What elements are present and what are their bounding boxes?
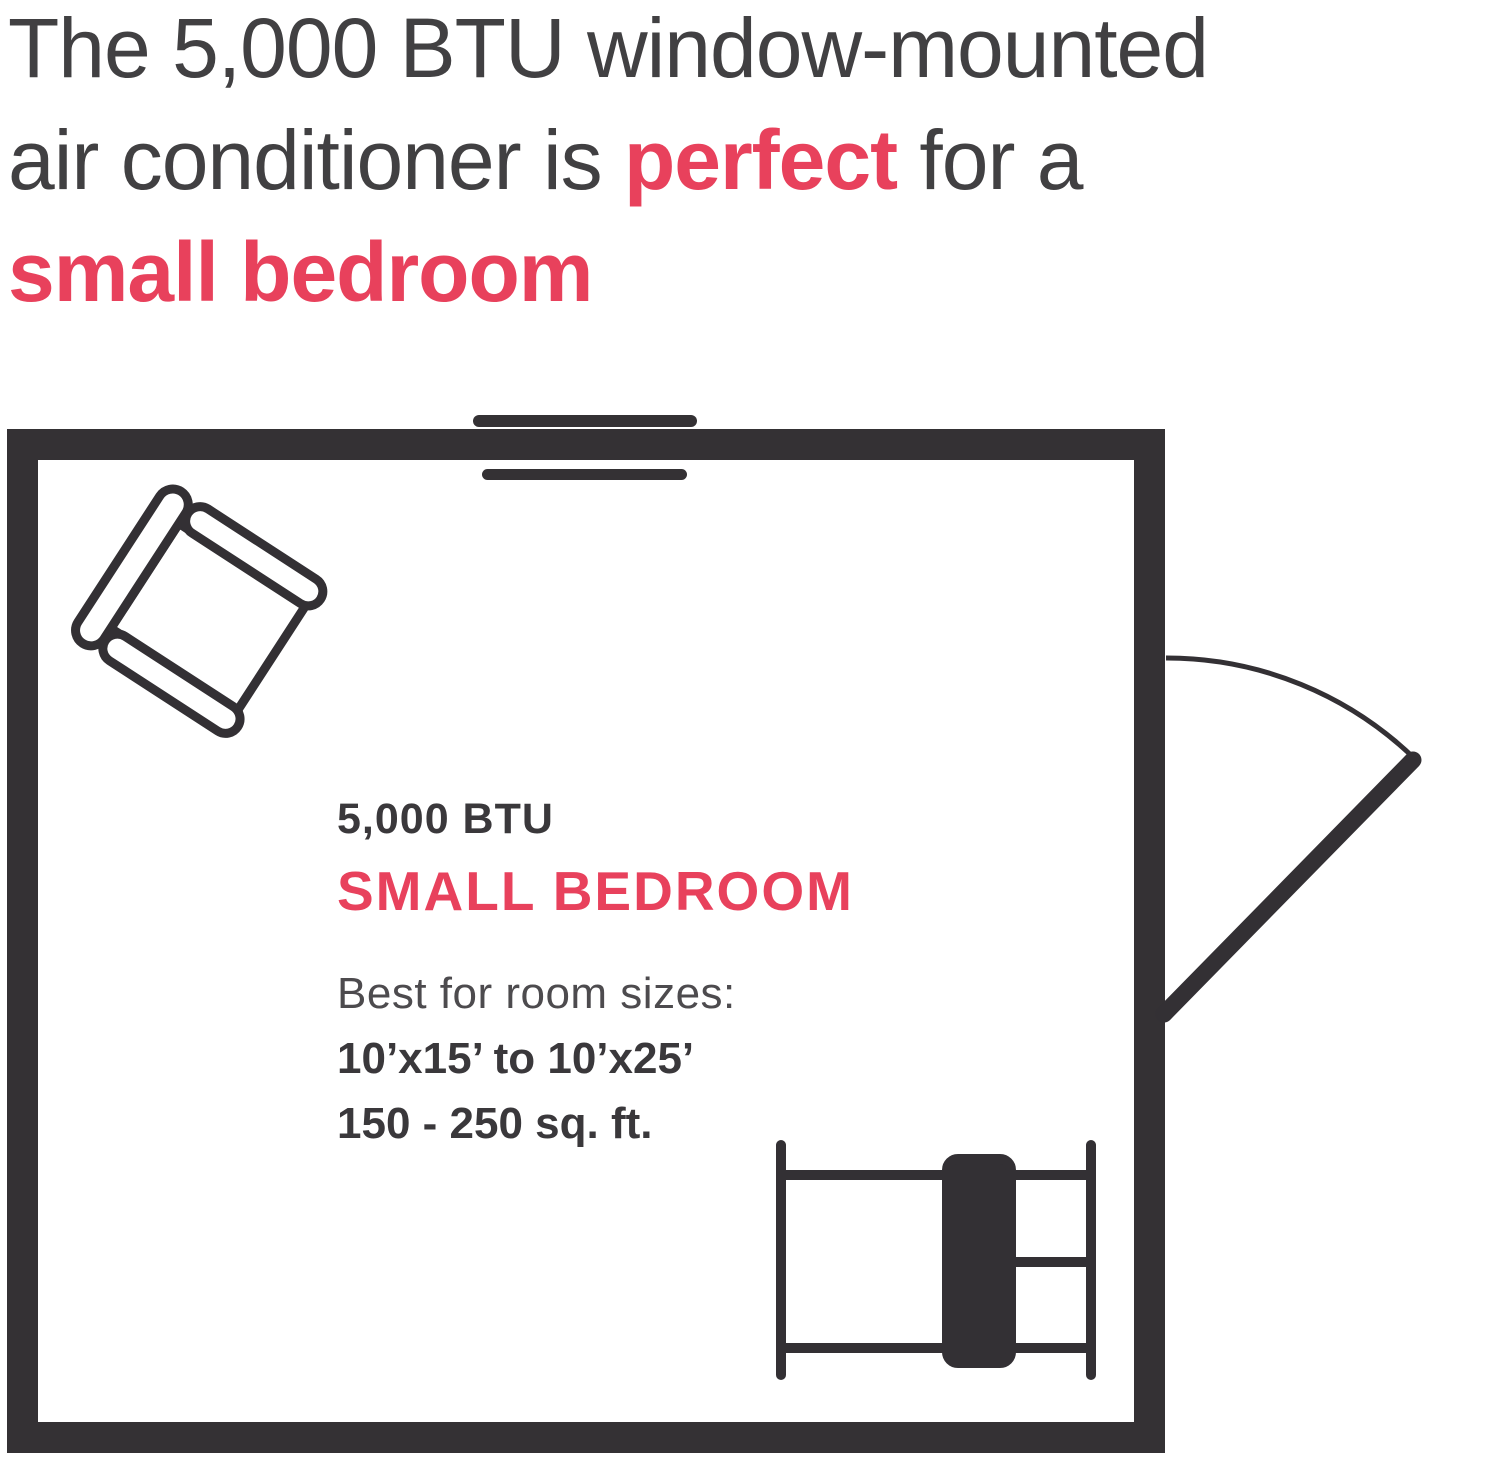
headline-text: air conditioner is bbox=[8, 113, 624, 207]
headline-line-2: air conditioner is perfect for a bbox=[8, 104, 1500, 216]
bed-icon bbox=[776, 1140, 1100, 1385]
headline-text: The 5,000 BTU window-mounted bbox=[8, 1, 1208, 95]
headline-line-3: small bedroom bbox=[8, 216, 1500, 328]
area-label: 150 - 250 sq. ft. bbox=[337, 1099, 854, 1149]
headline-text: for a bbox=[897, 113, 1082, 207]
dimensions-label: 10’x15’ to 10’x25’ bbox=[337, 1034, 854, 1084]
window-ac-icon bbox=[473, 415, 697, 427]
best-for-label: Best for room sizes: bbox=[337, 969, 854, 1019]
room-info: 5,000 BTU SMALL BEDROOM Best for room si… bbox=[337, 795, 854, 1149]
headline-line-1: The 5,000 BTU window-mounted bbox=[8, 0, 1500, 104]
bed-pillow bbox=[942, 1154, 1016, 1368]
btu-label: 5,000 BTU bbox=[337, 795, 854, 844]
bed-divider bbox=[1012, 1257, 1092, 1267]
headline: The 5,000 BTU window-mounted air conditi… bbox=[8, 0, 1500, 328]
headline-accent-small-bedroom: small bedroom bbox=[8, 225, 592, 319]
infographic-canvas: The 5,000 BTU window-mounted air conditi… bbox=[0, 0, 1500, 1459]
room-type-label: SMALL BEDROOM bbox=[337, 859, 854, 923]
door-leaf bbox=[1164, 760, 1413, 1014]
bed-rail-top bbox=[779, 1170, 1093, 1180]
window-ac-icon bbox=[482, 469, 687, 480]
headline-accent-perfect: perfect bbox=[624, 113, 897, 207]
door-swing-arc bbox=[1166, 658, 1416, 760]
bed-rail-bottom bbox=[779, 1343, 1093, 1353]
